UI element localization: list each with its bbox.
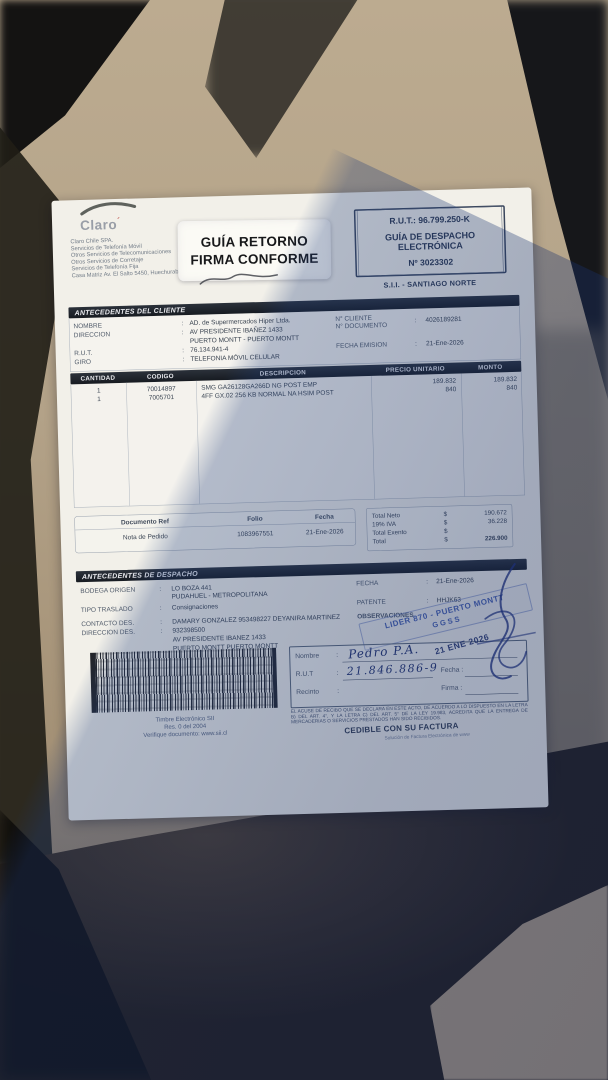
traslado-value: Consignaciones (172, 602, 218, 611)
sticker-subtitle: FIRMA CONFORME (190, 251, 318, 267)
recipient-name-label: Nombre (295, 652, 319, 660)
pdf417-barcode (90, 648, 278, 713)
client-giro: TELEFONIA MÓVIL CELULAR (190, 353, 280, 363)
ref-fecha-header: Fecha (295, 512, 354, 521)
handwritten-signature-icon (465, 557, 544, 704)
return-sticker: GUÍA RETORNO FIRMA CONFORME (177, 219, 331, 281)
brand-accent-icon: ´ (117, 216, 121, 226)
client-address-2: PUERTO MONTT - PUERTO MONTT (190, 334, 299, 345)
recinto-label: Recinto (296, 688, 319, 696)
recipient-rut-label: R.U.T (296, 670, 314, 678)
emission-date-value: 21-Ene-2026 (426, 338, 464, 347)
ref-doc-header: Documento Ref (75, 516, 215, 527)
sticker-title: GUÍA RETORNO (201, 234, 308, 249)
contacto-value: DAMARY GONZALEZ 953498227 DEYANIRA MARTI… (172, 613, 340, 625)
item-cantidad: 1 (71, 386, 126, 395)
ref-folio-header: Folio (215, 514, 295, 524)
reception-firma-label: Firma : (441, 684, 462, 692)
document-number: Nº 3023302 (408, 257, 453, 268)
colon: : (160, 604, 162, 612)
items-table-body: 1 70014897 SMG GA26128GA266D NG POST EMP… (71, 372, 525, 508)
total-label: Total (372, 536, 437, 546)
colon: : (160, 627, 162, 635)
bodega-value-2: PUDAHUEL - METROPOLITANA (171, 590, 267, 600)
dispatch-guide-document: Claro´ Claro Chile SPA. Servicios de Tel… (51, 187, 548, 820)
colon: : (337, 669, 339, 677)
supplier-info: Claro Chile SPA. Servicios de Telefonía … (70, 234, 189, 279)
client-rut-label: R.U.T. (74, 349, 92, 357)
colon: : (337, 687, 339, 695)
handwritten-name: Pedro P.A. (348, 642, 420, 662)
brand-text: Claro (80, 217, 117, 233)
direccion-des-label: DIRECCION DES. (81, 628, 135, 637)
client-address-label: DIRECCION (74, 330, 111, 339)
emission-date-label: FECHA EMISION (336, 341, 387, 350)
sii-rut-box: R.U.T.: 96.799.250-K GUÍA DE DESPACHO EL… (354, 205, 507, 277)
traslado-label: TIPO TRASLADO (81, 605, 133, 614)
colon: : (415, 340, 417, 348)
ref-folio-value: 1083967551 (215, 529, 295, 539)
item-monto: 840 (461, 383, 521, 392)
handwritten-rut: 21.846.886-9 (346, 661, 438, 678)
item-cantidad: 1 (71, 394, 126, 403)
client-giro-label: GIRO (74, 358, 91, 366)
item-codigo: 7005701 (126, 392, 196, 401)
direccion-des-1: 932398500 (172, 626, 205, 634)
ref-fecha-value: 21-Ene-2026 (295, 527, 354, 536)
colon: : (182, 328, 184, 336)
reception-fecha-label: Fecha : (441, 666, 464, 674)
colon: : (182, 355, 184, 363)
colon: : (182, 346, 184, 354)
photo-scene: Claro´ Claro Chile SPA. Servicios de Tel… (0, 0, 608, 1080)
document-number-value: 4026189281 (425, 315, 461, 324)
document-type: GUÍA DE DESPACHO ELECTRÓNICA (385, 230, 476, 253)
sii-office: S.I.I. - SANTIAGO NORTE (356, 278, 504, 290)
company-rut: R.U.T.: 96.799.250-K (389, 214, 470, 226)
total-value: 226.900 (454, 534, 507, 544)
reference-data-row: Nota de Pedido 1083967551 21-Ene-2026 (75, 527, 355, 542)
currency-sign: $ (437, 535, 454, 544)
colon: : (427, 596, 429, 604)
ref-doc-value: Nota de Pedido (75, 531, 215, 542)
signature-line (343, 677, 433, 680)
document-number-label: N° DOCUMENTO (335, 321, 387, 330)
client-rut: 76.134.941-4 (190, 345, 229, 354)
timbre-electronico-text: Timbre Electrónico SII Res. 0 del 2004 V… (92, 713, 279, 741)
colon: : (426, 577, 428, 585)
claro-logo: Claro´ (80, 216, 121, 234)
contacto-label: CONTACTO DES. (81, 619, 134, 628)
patente-label: PATENTE (357, 598, 386, 606)
colon: : (181, 319, 183, 327)
totals-box: Total Neto $ 190.672 19% IVA $ 36.228 To… (366, 504, 513, 551)
colon: : (159, 585, 161, 593)
client-name-label: NOMBRE (73, 321, 102, 329)
colon: : (336, 651, 338, 659)
reference-doc-table: Documento Ref Folio Fecha Nota de Pedido… (74, 508, 356, 553)
bodega-label: BODEGA ORIGEN (80, 586, 135, 595)
dispatch-fecha-label: FECHA (356, 579, 378, 587)
colon: : (160, 618, 162, 626)
item-precio: 840 (371, 385, 461, 395)
colon: : (414, 316, 416, 324)
signature-scribble-icon (197, 270, 282, 289)
